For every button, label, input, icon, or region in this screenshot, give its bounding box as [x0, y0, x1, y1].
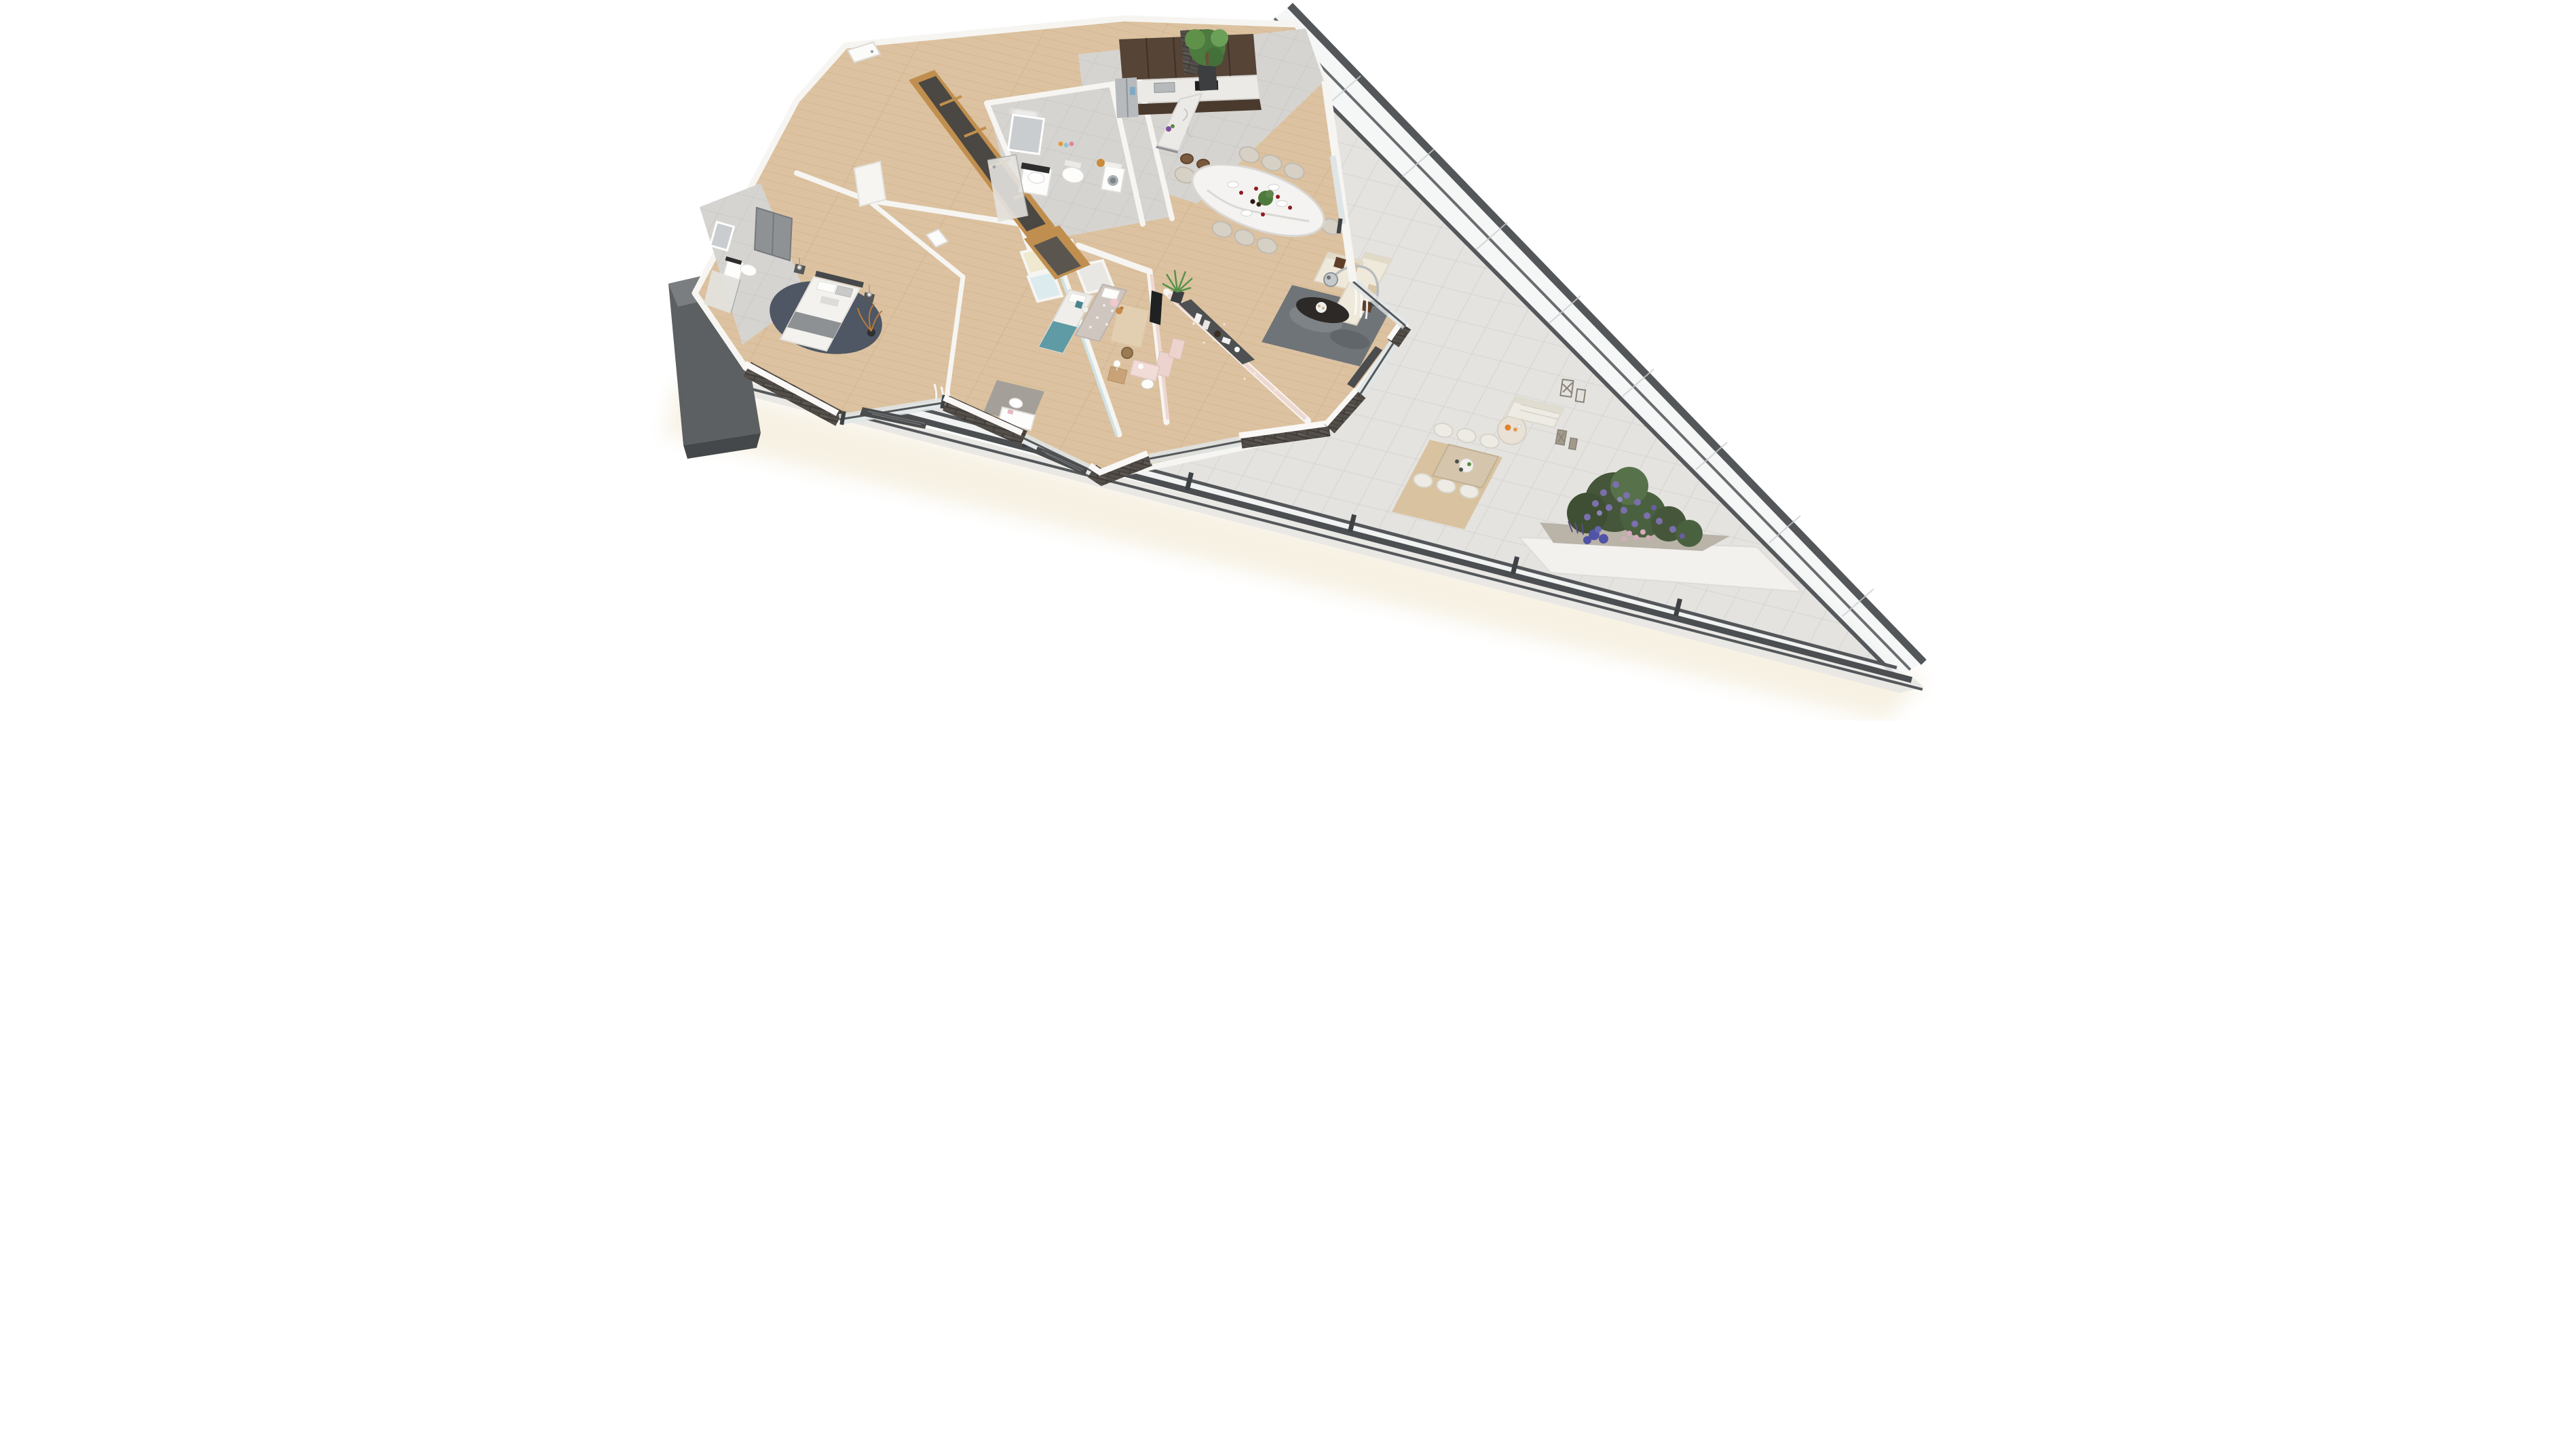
hall-column [854, 162, 886, 206]
bar-stool [1181, 154, 1193, 164]
rattan-basket [1122, 347, 1133, 358]
bathroom-vanity [1019, 162, 1052, 196]
wall-tv [1150, 290, 1162, 325]
floorplan-render [644, 0, 1932, 721]
bathroom-mirror [1008, 115, 1044, 154]
floorplan-stage [644, 0, 1932, 721]
kitchen-sink [1154, 82, 1175, 92]
fridge [1115, 77, 1139, 118]
